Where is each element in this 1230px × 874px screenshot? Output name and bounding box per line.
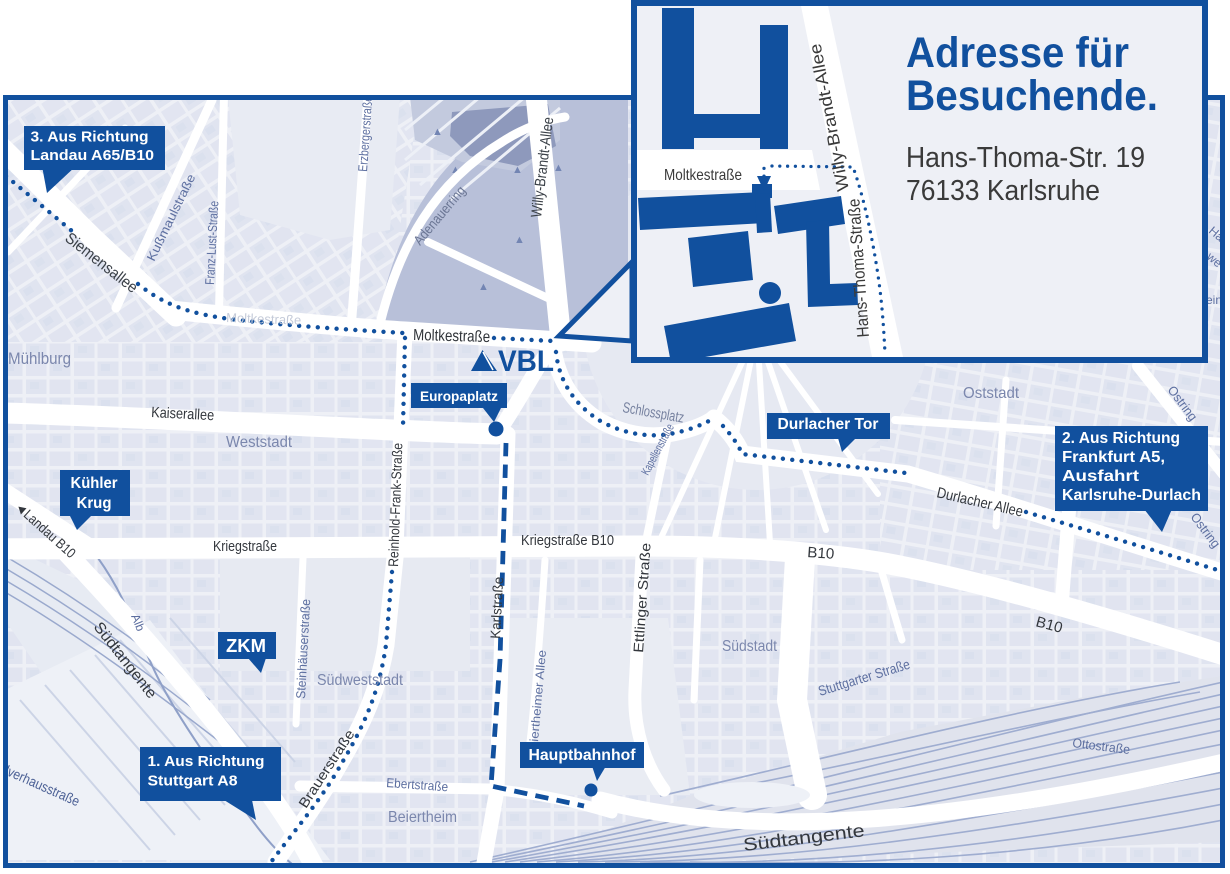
svg-text:VBL: VBL (498, 345, 554, 378)
svg-text:▲: ▲ (514, 234, 525, 246)
svg-text:Landau A65/B10: Landau A65/B10 (31, 147, 155, 164)
svg-text:Hauptbahnhof: Hauptbahnhof (529, 747, 637, 764)
svg-text:▲: ▲ (553, 162, 564, 174)
svg-text:Weststadt: Weststadt (226, 434, 293, 451)
svg-text:Kriegstraße B10: Kriegstraße B10 (521, 532, 614, 549)
svg-text:Hans-Thoma-Str. 19: Hans-Thoma-Str. 19 (906, 142, 1145, 174)
svg-text:ein: ein (1206, 293, 1222, 307)
svg-text:Kühler: Kühler (71, 475, 118, 492)
svg-text:Oststadt: Oststadt (963, 385, 1020, 402)
svg-text:Krug: Krug (77, 495, 112, 512)
svg-text:3. Aus Richtung: 3. Aus Richtung (31, 129, 149, 146)
svg-text:Durlacher Tor: Durlacher Tor (778, 416, 879, 433)
svg-text:Moltkestraße: Moltkestraße (226, 310, 302, 328)
svg-text:2. Aus Richtung: 2. Aus Richtung (1062, 430, 1180, 447)
svg-text:Frankfurt A5,: Frankfurt A5, (1062, 449, 1165, 466)
svg-text:Kaiserallee: Kaiserallee (151, 404, 215, 424)
svg-text:Europaplatz: Europaplatz (420, 389, 498, 404)
svg-text:Adresse für: Adresse für (906, 29, 1129, 77)
svg-text:▲: ▲ (478, 281, 489, 293)
svg-text:▲: ▲ (432, 126, 443, 138)
svg-text:76133 Karlsruhe: 76133 Karlsruhe (906, 175, 1100, 207)
svg-text:Kriegstraße: Kriegstraße (213, 538, 277, 555)
svg-text:1. Aus Richtung: 1. Aus Richtung (148, 753, 265, 770)
svg-text:Stuttgart A8: Stuttgart A8 (148, 773, 238, 790)
svg-text:Karlsruhe-Durlach: Karlsruhe-Durlach (1062, 487, 1201, 504)
svg-text:Südstadt: Südstadt (722, 638, 777, 655)
svg-text:Moltkestraße: Moltkestraße (664, 167, 742, 184)
svg-text:Beiertheim: Beiertheim (388, 809, 457, 826)
svg-text:▲: ▲ (512, 164, 523, 176)
svg-text:ZKM: ZKM (226, 636, 266, 656)
svg-text:B10: B10 (807, 544, 835, 563)
svg-text:Moltkestraße: Moltkestraße (413, 327, 491, 346)
svg-text:Karlstraße: Karlstraße (487, 576, 506, 639)
svg-text:Besuchende.: Besuchende. (906, 72, 1158, 120)
svg-text:Ausfahrt: Ausfahrt (1062, 468, 1139, 485)
svg-text:Südweststadt: Südweststadt (317, 672, 403, 689)
svg-text:Mühlburg: Mühlburg (8, 349, 71, 368)
